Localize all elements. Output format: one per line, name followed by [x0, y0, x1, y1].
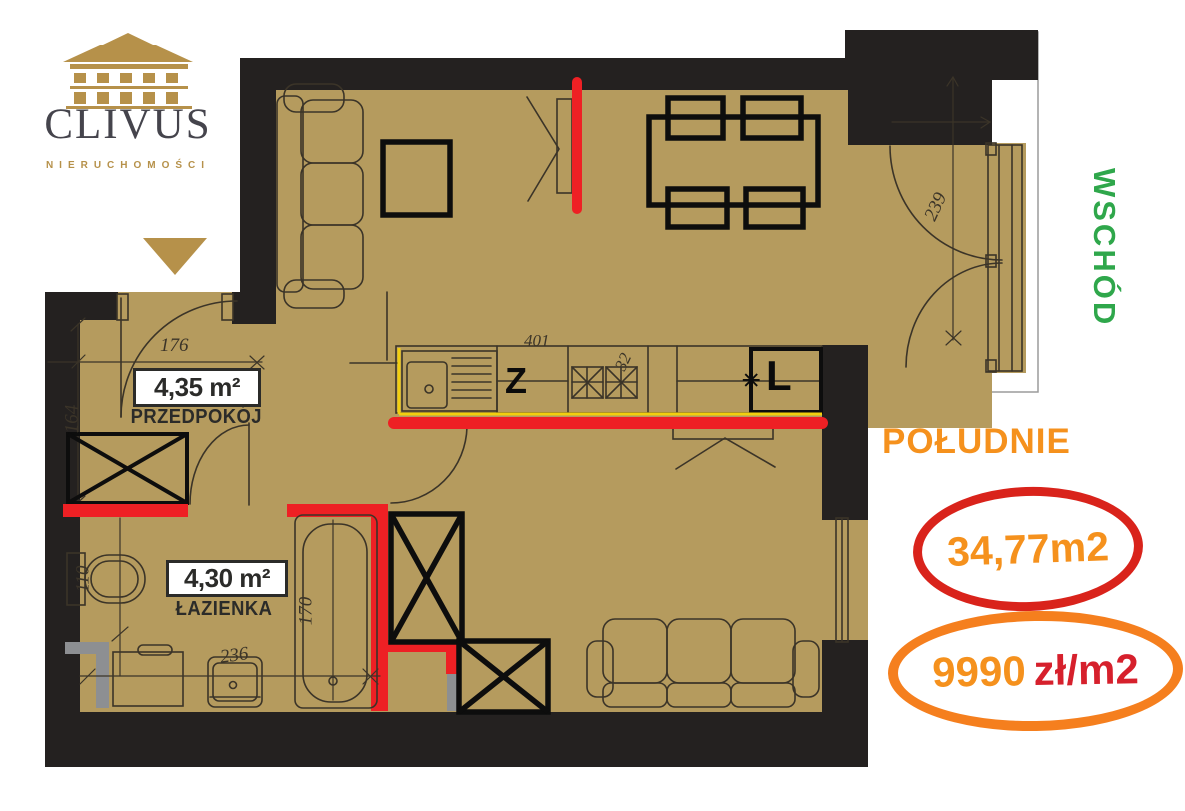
dim-hall-depth: 164: [61, 405, 83, 434]
dim-kitchen-width: 401: [524, 331, 550, 351]
bathroom-name-label: ŁAZIENKA: [165, 598, 283, 621]
logo-tagline: NIERUCHOMOŚCI: [28, 160, 228, 171]
logo-company: CLIVUS: [28, 100, 228, 149]
dim-bathroom-width: 236: [219, 643, 250, 669]
compass-south-label: POŁUDNIE: [882, 422, 1071, 462]
dishwasher-label: Z: [505, 360, 527, 402]
dim-toilet: 110: [73, 565, 95, 592]
hall-area-label: 4,35 m²: [133, 368, 261, 407]
snowflake-icon: ✳: [742, 368, 760, 394]
compass-east-label: WSCHÓD: [1086, 168, 1122, 327]
clivus-logo-icon: [63, 33, 193, 109]
price-unit: zł/m2: [1033, 645, 1139, 695]
floor-plan-page: CLIVUS NIERUCHOMOŚCI 4,35 m² PRZEDPOKÓJ …: [0, 0, 1185, 811]
price-value: 9990: [932, 647, 1026, 697]
total-area-value: 34,77m2: [946, 523, 1109, 576]
dim-hall-width: 176: [160, 335, 189, 357]
dim-bathtub: 170: [295, 597, 317, 626]
fridge-label: L: [766, 352, 792, 400]
bathroom-area-label: 4,30 m²: [166, 560, 288, 597]
entrance-arrow-icon: [143, 238, 207, 275]
hall-name-label: PRZEDPOKÓJ: [131, 406, 260, 429]
